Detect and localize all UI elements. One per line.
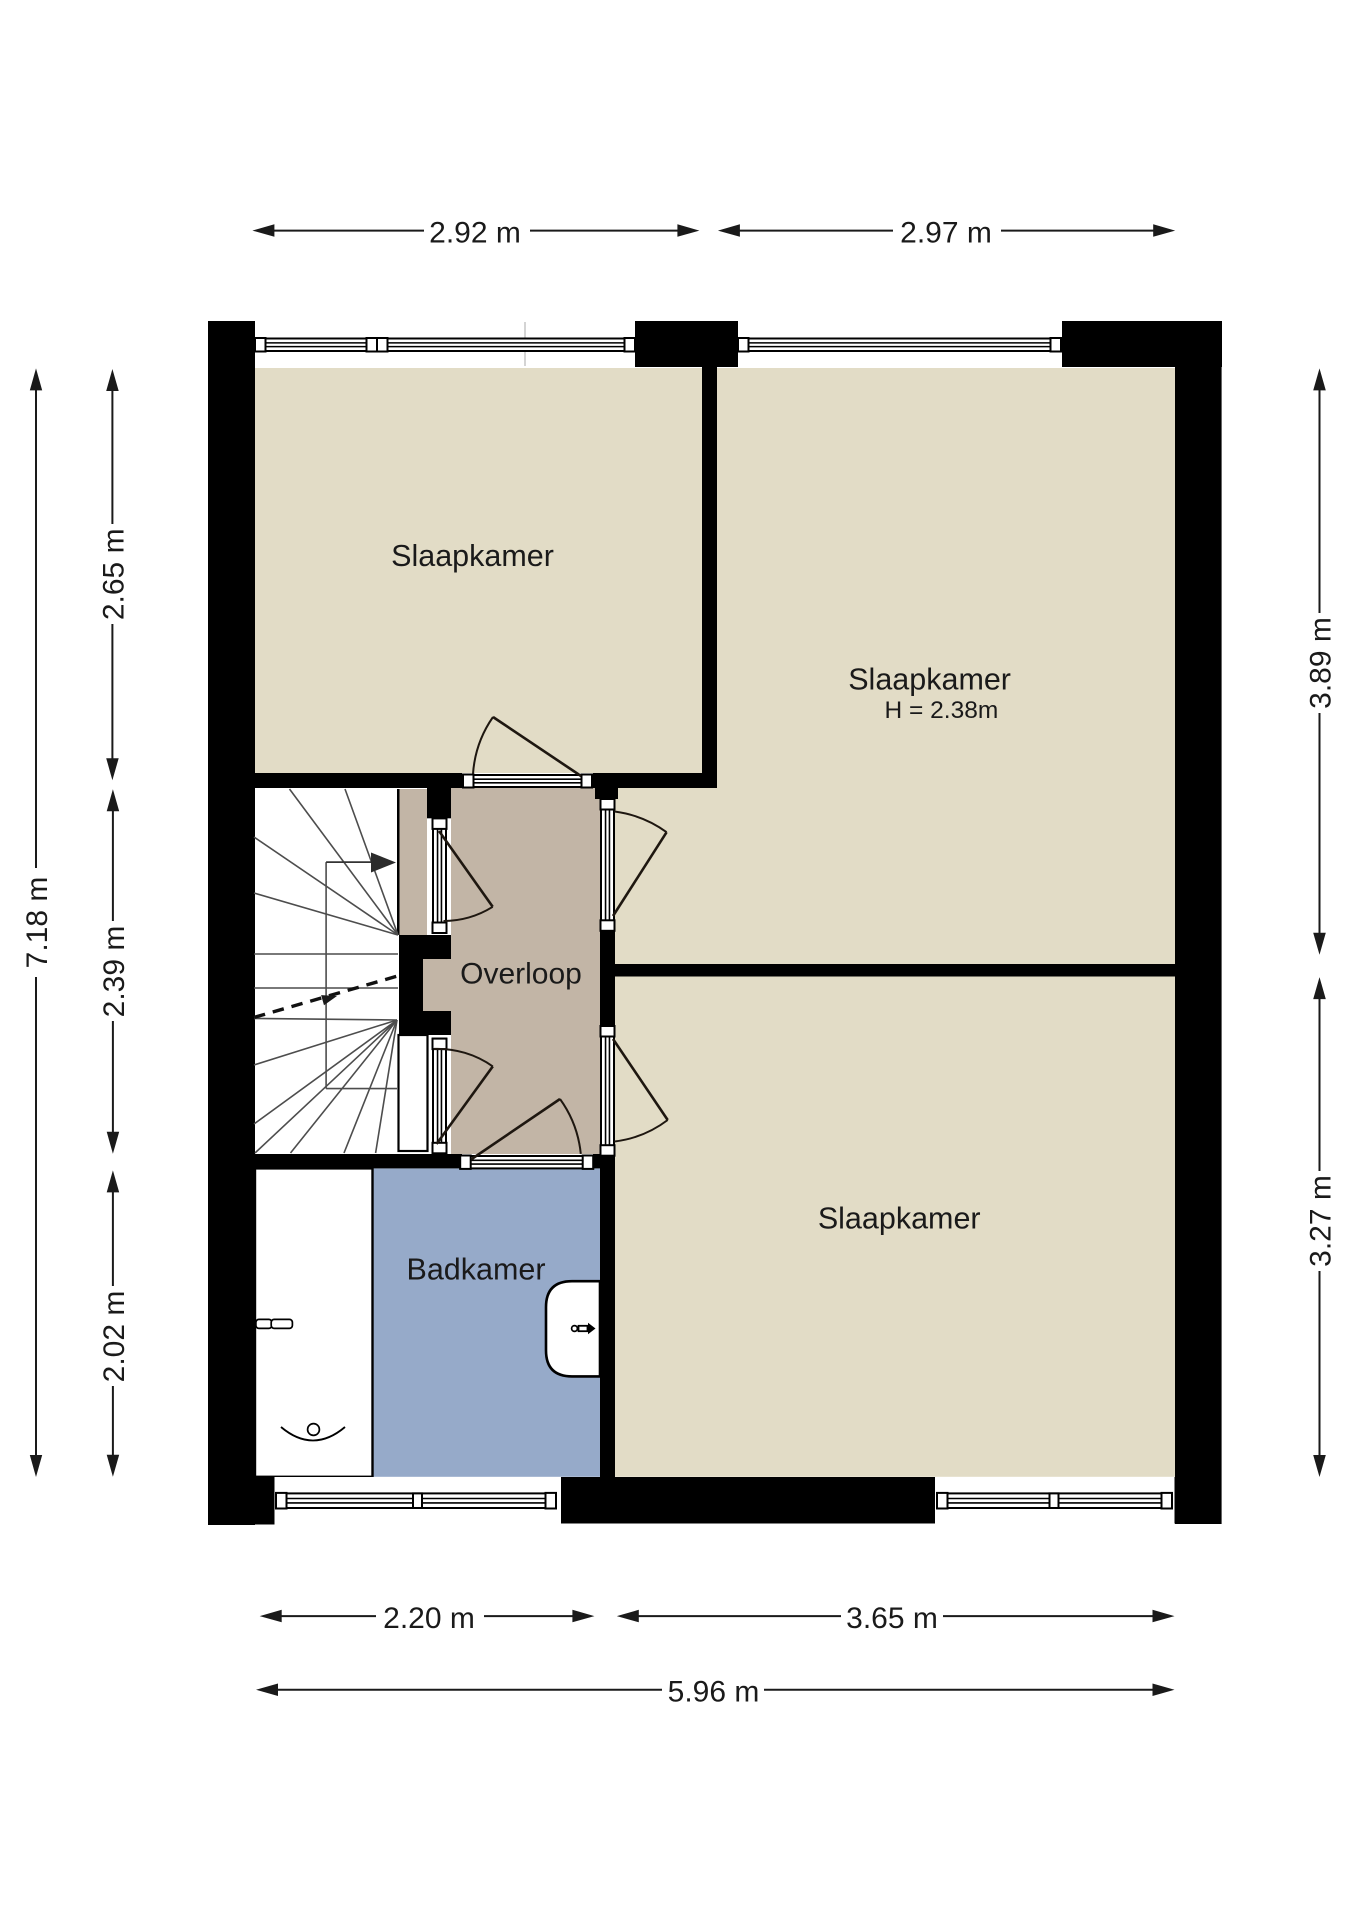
svg-text:Slaapkamer: Slaapkamer <box>848 663 1011 697</box>
svg-text:2.02 m: 2.02 m <box>98 1291 131 1383</box>
svg-text:5.96 m: 5.96 m <box>668 1676 760 1709</box>
svg-text:7.18 m: 7.18 m <box>21 877 54 969</box>
svg-text:Slaapkamer: Slaapkamer <box>818 1202 981 1236</box>
svg-text:Overloop: Overloop <box>460 958 582 991</box>
svg-text:2.20 m: 2.20 m <box>383 1602 475 1635</box>
svg-text:H = 2.38m: H = 2.38m <box>885 697 999 724</box>
svg-text:3.27 m: 3.27 m <box>1305 1175 1338 1267</box>
svg-text:Slaapkamer: Slaapkamer <box>391 539 554 573</box>
svg-text:2.97 m: 2.97 m <box>900 217 992 250</box>
svg-text:3.89 m: 3.89 m <box>1305 617 1338 709</box>
svg-text:3.65 m: 3.65 m <box>846 1602 938 1635</box>
svg-text:2.65 m: 2.65 m <box>97 528 130 620</box>
svg-text:2.92 m: 2.92 m <box>429 217 521 250</box>
svg-text:2.39 m: 2.39 m <box>98 926 131 1018</box>
svg-text:Badkamer: Badkamer <box>406 1252 545 1286</box>
